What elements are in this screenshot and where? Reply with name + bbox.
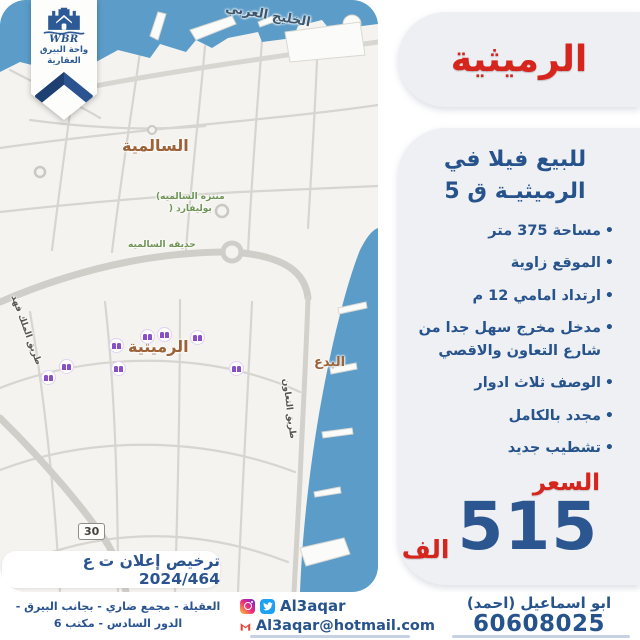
agent-contact: ابو اسماعيل (احمد) 60608025 — [440, 594, 638, 636]
instagram-icon — [240, 599, 255, 614]
agent-name: ابو اسماعيل (احمد) — [440, 594, 638, 612]
logo-acronym: WBR — [49, 34, 79, 45]
footer: العقيلة - مجمع ضاري - بجانب البيرق - الد… — [0, 592, 640, 640]
park-label-salmiya-garden: حديقه السالميه — [128, 240, 196, 252]
ad-license-text: ترخيص إعلان ت ع 2024/464 — [2, 551, 220, 588]
page-title: الرميثية — [451, 39, 587, 80]
contact-social: Al3aqar Al3aqar@hotmail.com — [240, 596, 435, 636]
castle-icon — [45, 6, 83, 30]
route-30-shield: 30 — [78, 523, 105, 540]
company-logo: WBR واحة البيرق العقارية — [31, 0, 97, 120]
mosque-marker-icon — [41, 370, 56, 385]
price-value: 515 — [457, 496, 598, 559]
logo-name-line1: واحة البيرق — [40, 45, 88, 56]
office-address: العقيلة - مجمع ضاري - بجانب البيرق - الد… — [6, 598, 230, 632]
logo-name-line2: العقارية — [47, 56, 80, 67]
gmail-icon — [240, 621, 251, 632]
park-label-boulevard: (منتزه السالميه ) بوليفارد — [156, 192, 225, 215]
mosque-marker-icon — [111, 361, 126, 376]
listing-subtitle: للبيع فيلا في الرميثيـة ق 5 — [404, 144, 626, 208]
feature-item: تشطيب جديد — [404, 437, 614, 459]
social-handle-row: Al3aqar — [240, 596, 435, 616]
feature-item: مدخل مخرج سهل جدا من شارع التعاون والاقص… — [404, 317, 614, 362]
listing-subtitle-line2: الرميثيـة ق 5 — [404, 176, 626, 208]
feature-item: الموقع زاوية — [404, 252, 614, 274]
mosque-marker-icon — [59, 359, 74, 374]
mosque-marker-icon — [157, 327, 172, 342]
email-address: Al3aqar@hotmail.com — [256, 618, 435, 634]
mosque-marker-icon — [190, 330, 205, 345]
email-row: Al3aqar@hotmail.com — [240, 616, 435, 636]
agent-phone: 60608025 — [440, 612, 638, 636]
feature-list: مساحة 375 مترالموقع زاويةارتداد امامي 12… — [404, 220, 626, 460]
park-label-boulevard-line2: ) بوليفارد — [156, 204, 225, 216]
footer-divider-bar — [250, 635, 410, 638]
mosque-marker-icon — [140, 329, 155, 344]
mosque-marker-icon — [109, 338, 124, 353]
price-unit: الف — [402, 535, 450, 564]
district-label-salmiya: السالمية — [122, 136, 189, 155]
feature-item: ارتداد امامي 12 م — [404, 285, 614, 307]
district-label-bidaa: البدع — [314, 355, 345, 370]
listing-details-panel: للبيع فيلا في الرميثيـة ق 5 مساحة 375 مت… — [398, 128, 640, 585]
office-address-line2: الدور السادس - مكتب 6 — [6, 615, 230, 632]
mosque-marker-icon — [229, 361, 244, 376]
title-banner: الرميثية — [398, 12, 640, 107]
park-label-boulevard-line1: (منتزه السالميه — [156, 192, 225, 204]
feature-item: مجدد بالكامل — [404, 405, 614, 427]
chevron-icon — [35, 72, 93, 108]
listing-subtitle-line1: للبيع فيلا في — [404, 144, 626, 176]
price-row: الف 515 — [404, 496, 596, 559]
social-handle: Al3aqar — [280, 597, 346, 615]
feature-item: الوصف ثلاث ادوار — [404, 372, 614, 394]
twitter-icon — [260, 599, 275, 614]
feature-item: مساحة 375 متر — [404, 220, 614, 242]
office-address-line1: العقيلة - مجمع ضاري - بجانب البيرق - — [6, 598, 230, 615]
